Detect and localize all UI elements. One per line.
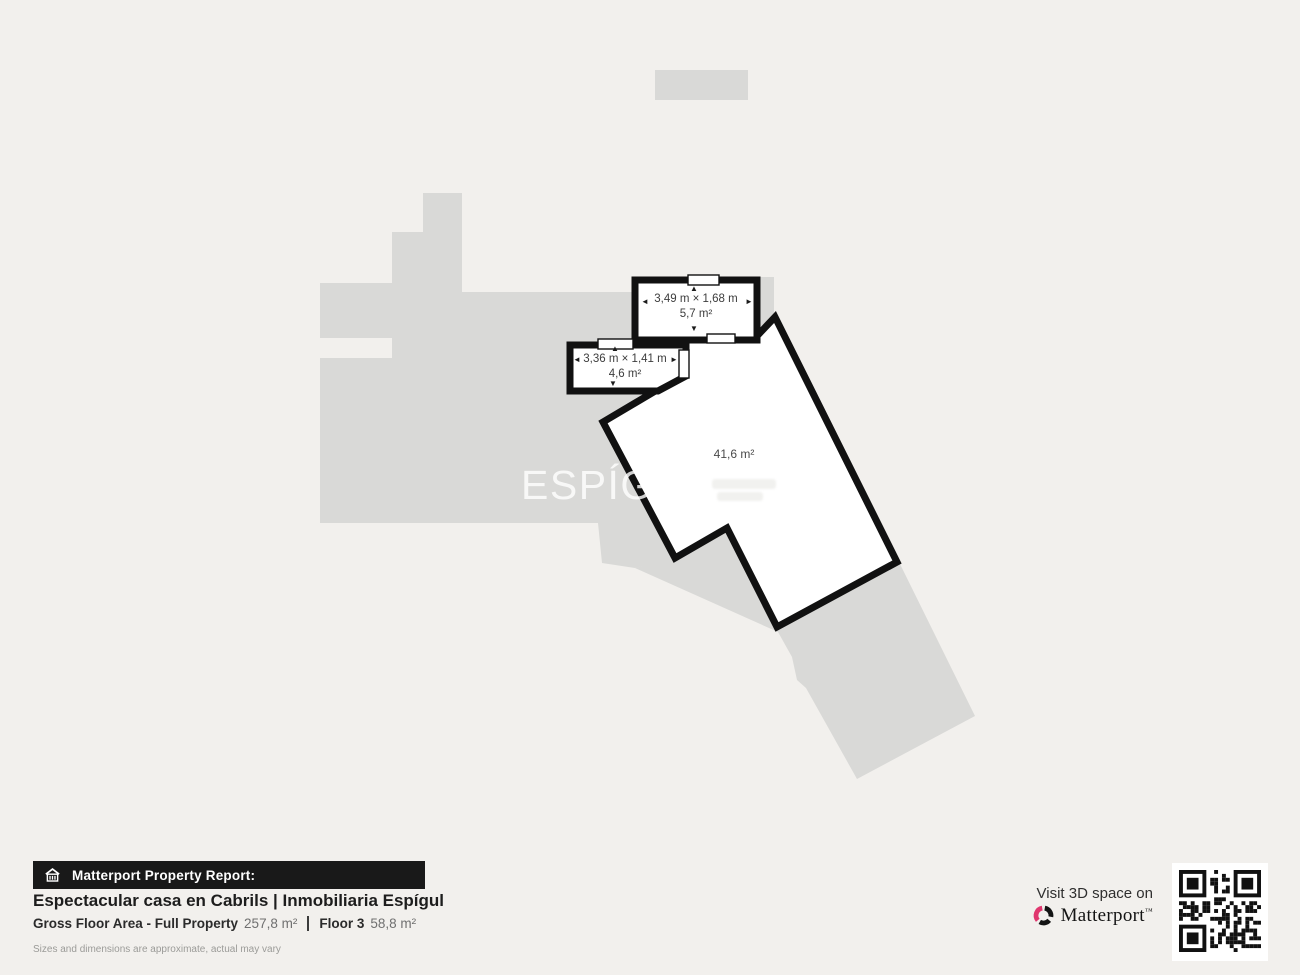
disclaimer-text: Sizes and dimensions are approximate, ac…: [33, 944, 281, 955]
arrow-down-icon: ▼: [690, 325, 698, 333]
room-57-label: 3,49 m × 1,68 m 5,7 m²: [637, 292, 755, 321]
property-title: Espectacular casa en Cabrils | Inmobilia…: [33, 891, 444, 911]
watermark-smudge: [717, 492, 763, 501]
watermark: ESPÍGUL®: [521, 462, 722, 509]
arrow-left-icon: ◄: [641, 298, 649, 306]
window-room57-bottom: [707, 334, 735, 343]
report-bar-label: Matterport Property Report:: [72, 868, 255, 883]
gross-floor-area-value: 257,8 m²: [244, 916, 297, 931]
matterport-brand: Matterport™: [983, 904, 1153, 927]
visit-3d-label: Visit 3D space on: [983, 885, 1153, 902]
room-46-label: 3,36 m × 1,41 m 4,6 m²: [570, 352, 680, 381]
arrow-up-icon: ▲: [690, 285, 698, 293]
watermark-smudge: [712, 479, 776, 489]
qr-pattern: [1179, 870, 1261, 952]
house-icon: [43, 866, 62, 885]
divider: [307, 916, 309, 931]
room-main-label: 41,6 m²: [697, 447, 771, 462]
brand-text: Matterport: [1061, 905, 1145, 926]
room-main-area: 41,6 m²: [697, 447, 771, 462]
arrow-down-icon: ▼: [609, 380, 617, 388]
matterport-wordmark: Matterport™: [1061, 905, 1153, 927]
arrow-right-icon: ►: [745, 298, 753, 306]
area-summary: Gross Floor Area - Full Property 257,8 m…: [33, 916, 416, 931]
room-46-dimensions: 3,36 m × 1,41 m: [570, 352, 680, 367]
silhouette-top-block: [655, 70, 748, 100]
floor-label: Floor 3: [319, 916, 364, 931]
report-header-bar: Matterport Property Report:: [33, 861, 425, 889]
room-57-area: 5,7 m²: [637, 307, 755, 322]
room-46-area: 4,6 m²: [570, 367, 680, 382]
floor-area-value: 58,8 m²: [370, 916, 416, 931]
floor-plan-canvas: ESPÍGUL® 3,49 m × 1,68 m 5,7 m² ▲ ▼ ◄ ► …: [0, 0, 1300, 975]
matterport-logo-icon: [1032, 904, 1055, 927]
room-57-dimensions: 3,49 m × 1,68 m: [637, 292, 755, 307]
arrow-left-icon: ◄: [573, 356, 581, 364]
qr-code: [1172, 863, 1268, 961]
gross-floor-area-label: Gross Floor Area - Full Property: [33, 916, 238, 931]
arrow-up-icon: ▲: [611, 345, 619, 353]
arrow-right-icon: ►: [670, 356, 678, 364]
watermark-text: ESPÍGUL: [521, 462, 709, 508]
trademark-mark: ™: [1145, 906, 1153, 915]
window-room46-right: [679, 350, 689, 378]
